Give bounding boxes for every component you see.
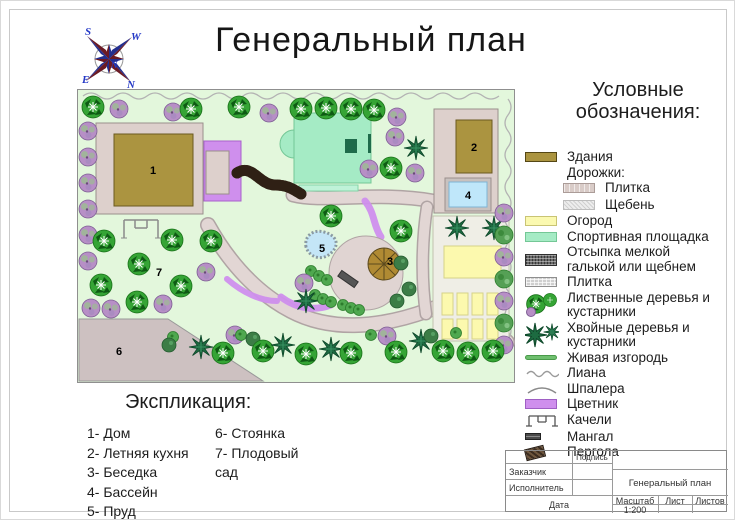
label-parking: 6 — [116, 346, 122, 358]
compass-rose: S W E N N — [75, 23, 145, 93]
flowerbed-swatch — [525, 399, 557, 409]
explication-heading: Экспликация: — [125, 391, 299, 414]
tb-date: Дата — [506, 500, 612, 510]
explication-item: 7- Плодовый сад — [215, 444, 299, 483]
legend-item-grill: Мангал — [525, 430, 723, 445]
garden-swatch — [525, 216, 557, 226]
legend-item-tile: Плитка — [525, 181, 723, 196]
legend-item-deciduous: Лиственные деревья и кустарники — [525, 291, 723, 320]
legend-item-pebble-fill: Отсыпка мелкой галькой или щебнем — [525, 245, 723, 274]
explication-item: 6- Стоянка — [215, 424, 299, 444]
compass-letter-center: N — [110, 60, 118, 70]
tb-executor: Исполнитель — [509, 483, 564, 493]
tb-sheet: Лист — [658, 496, 692, 506]
legend-item-conifer: Хвойные деревья и кустарники — [525, 321, 723, 350]
explication-item: 2- Летняя кухня — [87, 444, 215, 464]
tb-drawing-title: Генеральный план — [612, 478, 728, 489]
explication: Экспликация: 1- Дом 2- Летняя кухня 3- Б… — [87, 391, 299, 520]
compass-letter-w: W — [131, 31, 142, 43]
legend-item-flowerbed: Цветник — [525, 397, 723, 412]
drawing-sheet: Генеральный план S W E N N — [0, 0, 735, 520]
label-orchard: 7 — [156, 267, 162, 279]
sports-ground — [280, 113, 371, 191]
tb-signature: Подпись — [572, 453, 612, 462]
page-title: Генеральный план — [151, 21, 591, 60]
site-plan: 1 2 3 4 5 6 7 — [77, 89, 515, 383]
label-pool: 4 — [465, 190, 472, 202]
legend: Условные обозначения: Здания Дорожки: Пл… — [525, 79, 723, 461]
legend-item-paths: Дорожки: — [525, 166, 723, 181]
explication-item: 5- Пруд — [87, 502, 215, 520]
legend-item-garden: Огород — [525, 214, 723, 229]
sports-ground-swatch — [525, 232, 557, 242]
tile-gray-swatch — [525, 277, 557, 287]
pebble-fill-swatch — [525, 254, 557, 266]
swing-icon — [525, 413, 559, 429]
legend-item-swing: Качели — [525, 413, 723, 429]
explication-item: 3- Беседка — [87, 463, 215, 483]
liana-icon — [525, 366, 559, 380]
compass-long-points — [86, 36, 132, 82]
paths-spacer — [525, 166, 559, 180]
explication-item: 1- Дом — [87, 424, 215, 444]
crushed-stone-swatch — [563, 200, 595, 210]
tb-sheets: Листов — [692, 496, 728, 506]
legend-heading: Условные обозначения: — [559, 79, 717, 123]
legend-item-crushed-stone: Щебень — [525, 198, 723, 213]
legend-item-tile-gray: Плитка — [525, 275, 723, 290]
buildings-swatch — [525, 152, 557, 162]
deciduous-trees-icon — [525, 292, 559, 318]
title-block: Подпись Заказчик Исполнитель Генеральный… — [505, 450, 727, 512]
conifer-trees-icon — [525, 322, 559, 348]
explication-column-2: 6- Стоянка 7- Плодовый сад — [215, 424, 299, 520]
legend-item-hedge: Живая изгородь — [525, 351, 723, 366]
legend-item-trellis: Шпалера — [525, 382, 723, 397]
tile-swatch — [563, 183, 595, 193]
label-summer-kitchen: 2 — [471, 142, 477, 154]
label-gazebo: 3 — [387, 256, 393, 268]
explication-item: 4- Бассейн — [87, 483, 215, 503]
label-house: 1 — [150, 165, 156, 177]
small-terrace — [206, 151, 229, 194]
tb-customer: Заказчик — [509, 467, 546, 477]
compass-letter-e: E — [81, 74, 89, 86]
label-pond: 5 — [319, 243, 325, 255]
trellis-icon — [525, 382, 559, 396]
explication-column-1: 1- Дом 2- Летняя кухня 3- Беседка 4- Бас… — [87, 424, 215, 520]
tb-scale-value: 1:200 — [612, 505, 658, 515]
grill-icon — [525, 433, 541, 440]
legend-item-buildings: Здания — [525, 150, 723, 165]
hedge-swatch — [525, 355, 557, 360]
legend-item-sports-ground: Спортивная площадка — [525, 230, 723, 245]
legend-item-liana: Лиана — [525, 366, 723, 381]
compass-letter-s: S — [85, 26, 91, 38]
